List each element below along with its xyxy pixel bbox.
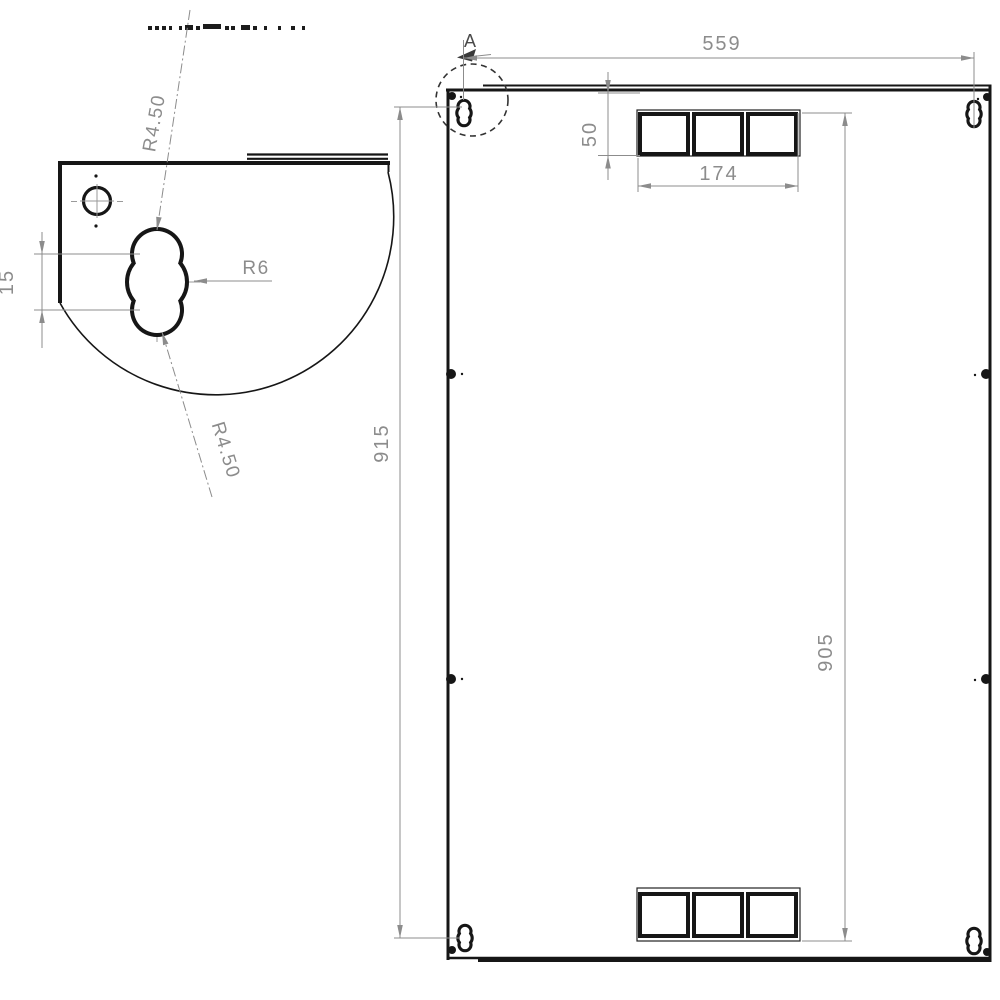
radius-top-label: R4.50	[139, 93, 170, 154]
top-slot-3	[748, 114, 796, 154]
cropped-text-marks	[148, 24, 305, 30]
dimension-slot-spacing: 15	[0, 232, 140, 348]
corner-dots	[448, 92, 991, 956]
slot-group-bottom	[637, 888, 800, 941]
width-label: 559	[702, 33, 741, 55]
technical-drawing-canvas: 15 R4.50 R4.50 R6 A	[0, 0, 1000, 1000]
slot-height-label: 50	[579, 121, 601, 147]
drawing-svg: 15 R4.50 R4.50 R6 A	[0, 0, 1000, 1000]
keyhole-slot-top-left	[457, 100, 471, 125]
panel-view: A	[371, 31, 992, 960]
detail-view: 15 R4.50 R4.50 R6	[0, 10, 394, 497]
bottom-slot-2	[694, 894, 742, 936]
top-slot-2	[694, 114, 742, 154]
detail-marker-label: A	[464, 31, 476, 51]
edge-dots	[446, 369, 991, 684]
slot-group-width-label: 174	[699, 163, 738, 185]
radius-bottom-label: R4.50	[207, 419, 244, 481]
dimension-slot-height-50: 50	[579, 72, 640, 180]
leader-radius-middle: R6	[194, 258, 272, 281]
bottom-slot-3	[748, 894, 796, 936]
height-right-label: 905	[815, 632, 837, 671]
bottom-slot-1	[640, 894, 688, 936]
slot-group-top	[637, 110, 800, 156]
dimension-height-905: 905	[802, 113, 852, 941]
leader-radius-bottom: R4.50	[162, 332, 244, 497]
detail-keyhole-slot	[127, 222, 200, 342]
leader-radius-top: R4.50	[139, 10, 190, 230]
keyhole-slot-bottom-right	[967, 928, 981, 953]
height-left-label: 915	[371, 423, 393, 462]
radius-middle-label: R6	[242, 258, 269, 279]
slot-spacing-label: 15	[0, 269, 18, 295]
top-slot-1	[640, 114, 688, 154]
detail-hole	[71, 174, 123, 227]
detail-callout-marker: A	[457, 31, 491, 62]
